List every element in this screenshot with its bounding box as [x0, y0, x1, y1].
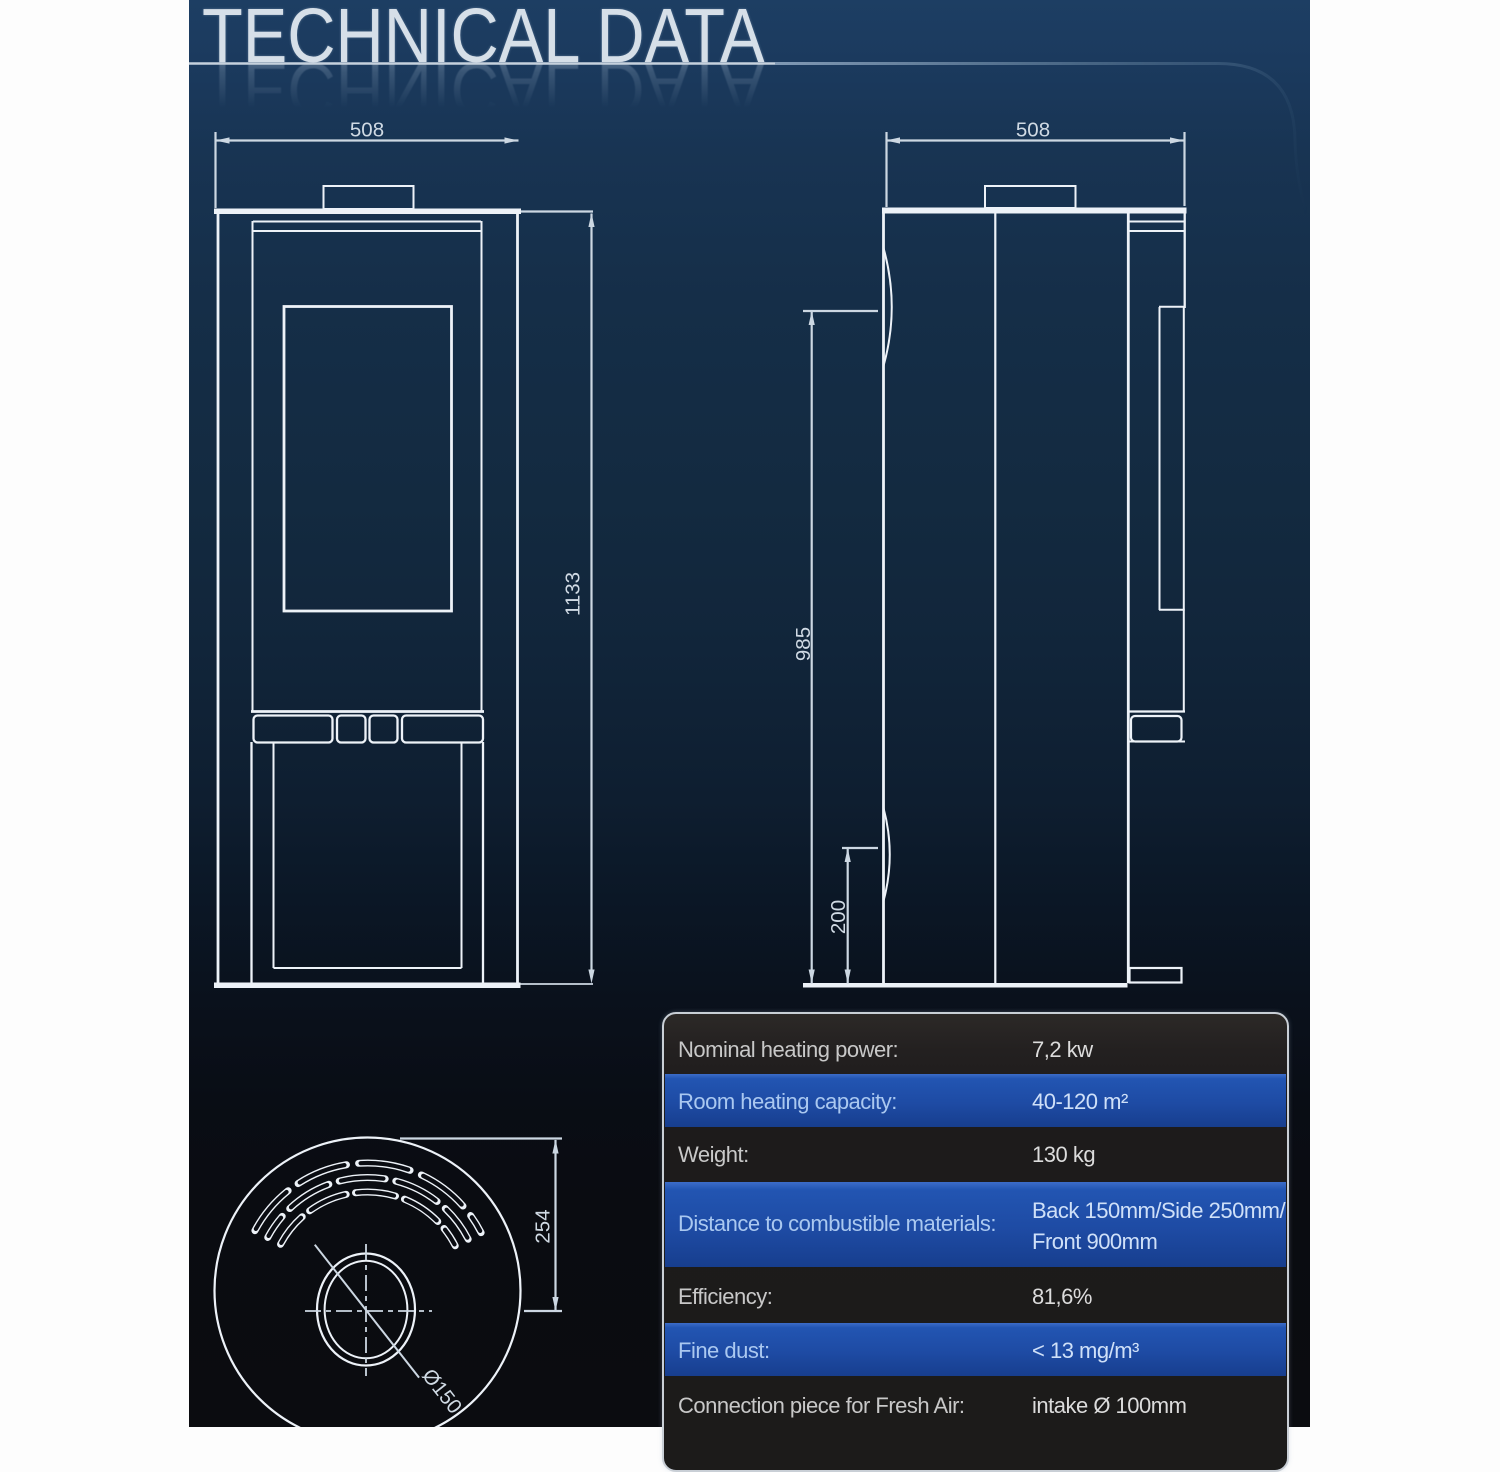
svg-text:254: 254	[531, 1209, 554, 1243]
svg-text:200: 200	[827, 900, 850, 934]
svg-text:Ø150: Ø150	[417, 1365, 466, 1419]
svg-text:985: 985	[792, 627, 815, 661]
svg-text:508: 508	[350, 118, 384, 141]
svg-text:1133: 1133	[561, 572, 584, 616]
svg-text:508: 508	[1016, 118, 1050, 141]
